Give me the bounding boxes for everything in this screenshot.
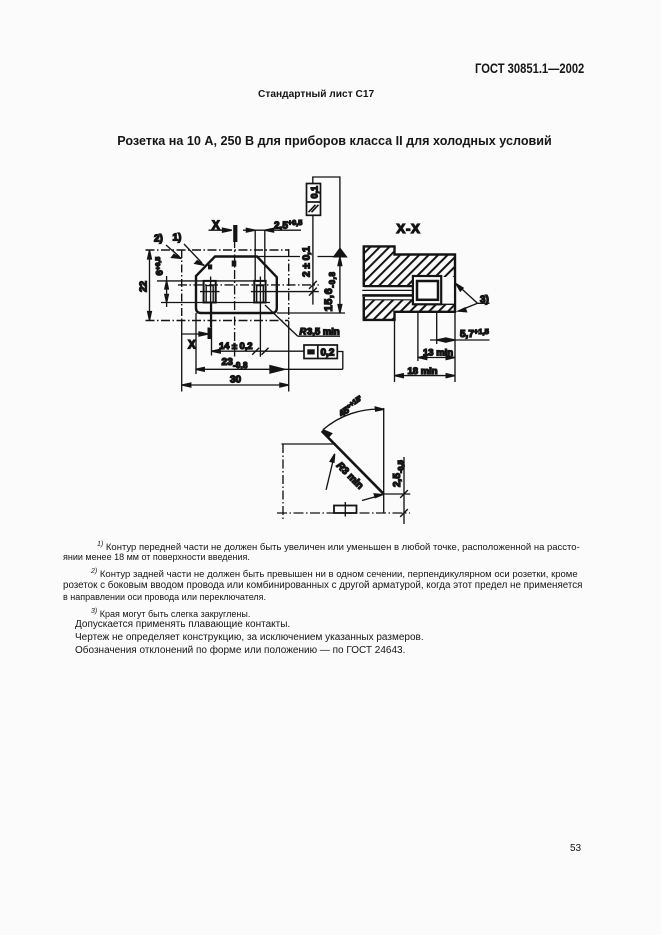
- svg-text:1): 1): [173, 233, 182, 244]
- svg-text:18 min: 18 min: [408, 366, 438, 377]
- svg-text:3,5 min: 3,5 min: [307, 326, 340, 337]
- svg-text:13 min: 13 min: [423, 347, 453, 358]
- svg-text:Х-Х: Х-Х: [397, 221, 421, 236]
- svg-text:5,7+1,5: 5,7+1,5: [460, 327, 490, 340]
- svg-text:X: X: [188, 340, 196, 352]
- svg-text:30: 30: [230, 374, 242, 385]
- svg-text:22: 22: [139, 280, 150, 292]
- svg-text:15,6-0,8: 15,6-0,8: [323, 272, 337, 312]
- svg-text:R: R: [300, 326, 307, 337]
- svg-text:R3 min: R3 min: [334, 460, 365, 491]
- svg-text:2,5-0,5: 2,5-0,5: [392, 460, 405, 487]
- svg-text:2,5+0,5: 2,5+0,5: [274, 218, 302, 231]
- svg-text:23-0,8: 23-0,8: [222, 357, 248, 370]
- svg-text:0,1: 0,1: [309, 186, 319, 199]
- svg-text:45°+15': 45°+15': [337, 395, 365, 419]
- svg-text:0,2: 0,2: [321, 348, 335, 359]
- svg-text:2): 2): [154, 234, 163, 245]
- svg-text:14 ± 0,2: 14 ± 0,2: [219, 341, 252, 352]
- svg-text:2 ± 0,1: 2 ± 0,1: [302, 246, 313, 277]
- svg-text:6+0,5: 6+0,5: [155, 257, 166, 276]
